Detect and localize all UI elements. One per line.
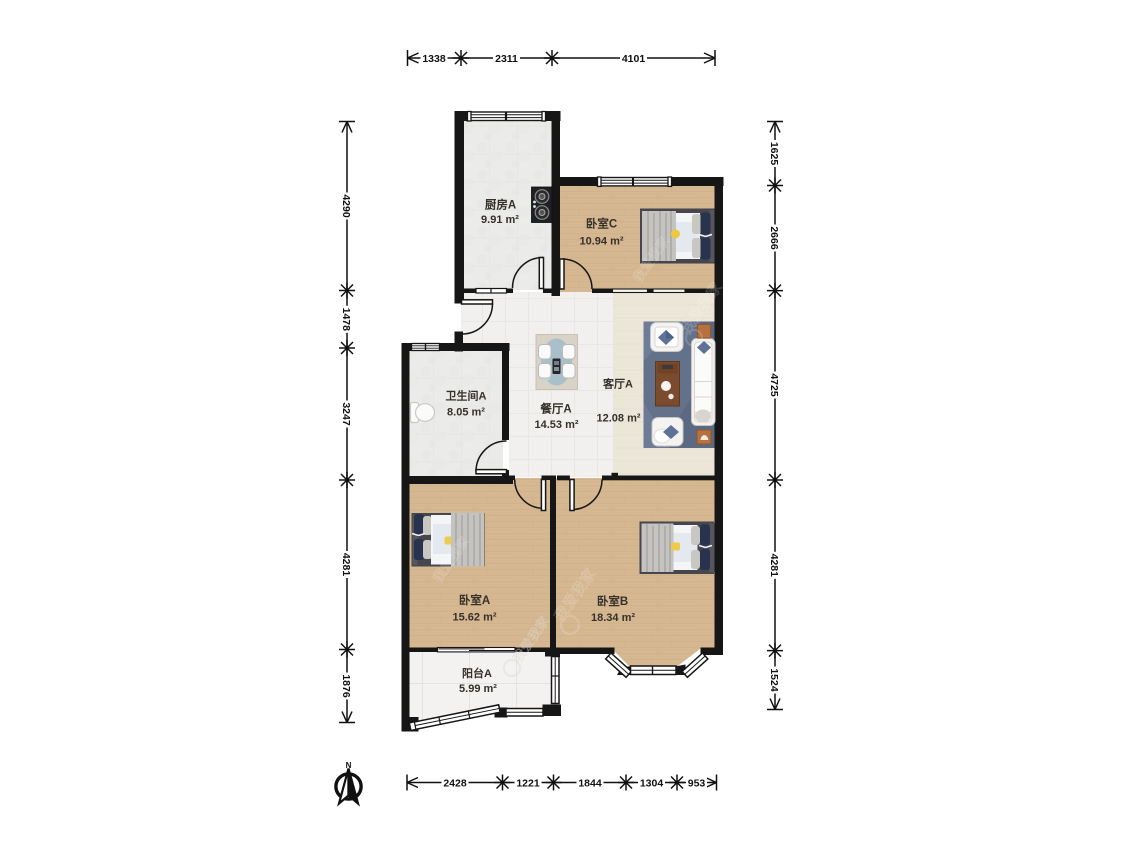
svg-text:餐厅A: 餐厅A xyxy=(539,402,571,416)
svg-text:4725: 4725 xyxy=(768,373,780,397)
svg-text:10.94 m²: 10.94 m² xyxy=(579,236,623,248)
svg-text:2428: 2428 xyxy=(443,777,467,789)
svg-text:1221: 1221 xyxy=(516,777,540,789)
svg-text:953: 953 xyxy=(688,777,706,789)
svg-text:2666: 2666 xyxy=(768,226,780,250)
svg-text:3247: 3247 xyxy=(340,402,352,426)
svg-text:5.99 m²: 5.99 m² xyxy=(459,683,497,695)
svg-text:14.53 m²: 14.53 m² xyxy=(534,419,578,431)
svg-text:4290: 4290 xyxy=(340,194,352,218)
svg-text:1304: 1304 xyxy=(640,777,664,789)
svg-text:12.08 m²: 12.08 m² xyxy=(596,413,640,425)
svg-text:1524: 1524 xyxy=(768,668,780,692)
svg-text:9.91 m²: 9.91 m² xyxy=(481,214,519,226)
svg-text:1625: 1625 xyxy=(768,142,780,166)
svg-text:2311: 2311 xyxy=(495,53,518,65)
svg-text:1844: 1844 xyxy=(578,777,602,789)
svg-text:客厅A: 客厅A xyxy=(602,377,633,391)
svg-text:1478: 1478 xyxy=(340,308,352,332)
svg-text:18.34 m²: 18.34 m² xyxy=(591,612,635,624)
svg-text:卧室A: 卧室A xyxy=(459,593,490,607)
svg-text:1876: 1876 xyxy=(340,674,352,698)
svg-text:厨房A: 厨房A xyxy=(485,198,516,212)
svg-text:阳台A: 阳台A xyxy=(462,666,492,680)
svg-text:卫生间A: 卫生间A xyxy=(446,389,487,403)
svg-text:8.05 m²: 8.05 m² xyxy=(447,407,485,419)
svg-text:4101: 4101 xyxy=(622,53,646,65)
svg-text:15.62 m²: 15.62 m² xyxy=(452,612,496,624)
svg-text:4281: 4281 xyxy=(768,554,780,578)
svg-text:1338: 1338 xyxy=(422,53,446,65)
svg-text:4281: 4281 xyxy=(340,553,352,577)
svg-text:卧室B: 卧室B xyxy=(597,594,628,608)
svg-text:卧室C: 卧室C xyxy=(586,217,617,231)
